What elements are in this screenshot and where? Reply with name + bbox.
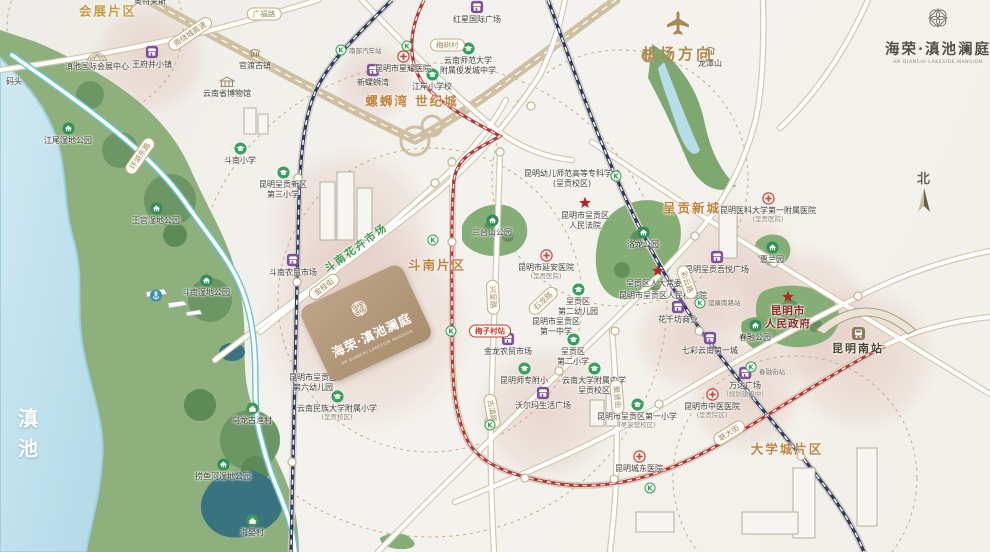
shizhuan-fuxiao-label: 昆明师专附小 (500, 376, 548, 386)
minda-fuxiao-sublabel: (呈贡校区) (321, 414, 352, 421)
renmin-fayuan-label: 昆明市呈贡区 人民法院 (561, 211, 609, 231)
youer-shifan: 昆明幼儿师范高等专科学校 (呈贡校区) (524, 168, 620, 189)
shizhuan-fuxiao: 昆明师专附小 (500, 362, 548, 386)
airport-direction-label: 机场方向 (642, 43, 714, 64)
wharf: 码头 (6, 76, 22, 87)
station-meizicun-metro-icon: K (446, 326, 457, 337)
compass-north-label: 北 (917, 168, 931, 187)
luolong-park-label: 洛龙公园 (627, 240, 659, 250)
jinlong-farmers-market-label: 金龙农贸市场 (484, 347, 532, 357)
road-raocheng: 南绕城高速 (166, 15, 214, 53)
wuyue-plaza: 昆明呈贡吾悦广场 (685, 250, 749, 275)
station-yikangnanlu-label: 谊康南路站 (708, 297, 741, 307)
area-chenggong: 呈贡新城 (663, 198, 721, 217)
no2-kindergarten-label: 呈贡区 第二幼儿园 (558, 297, 598, 317)
huilan-garden: 惠兰园 (760, 241, 784, 265)
guandu-old-town-label: 官渡古镇 (239, 61, 271, 71)
area-huizhan: 会展片区 (79, 1, 137, 20)
haiyan-village: 海晏村 (240, 514, 264, 538)
hongxing-intl-plaza-mall-icon (470, 0, 484, 14)
yunnan-museum: 云南省博物馆 (203, 76, 251, 99)
no1-primary-school-icon (631, 398, 644, 411)
zhongyi-hospital-sublabel: (呈贡院区) (696, 412, 727, 419)
chunrong-park-label: 春融公园 (739, 333, 771, 343)
jiangwei-wetland-park-label: 江尾湿地公园 (44, 136, 92, 146)
huilan-garden-park-icon (766, 241, 779, 254)
wangfujing-town: 王府井小镇 (132, 45, 172, 70)
guandu-old-town: 官渡古镇 (239, 46, 271, 71)
walmart-plaza-mall-icon (536, 386, 550, 400)
zhongyi-hospital-hospital-icon (706, 388, 719, 401)
haiyan-village-village-icon (246, 514, 259, 527)
station-unnamed-2-metro-icon: K (485, 420, 496, 431)
kunming-government-label: 昆明市 人民政府 (765, 305, 811, 331)
outlets-label: 奥特莱斯 (134, 0, 166, 7)
yunnan-museum-museum-icon (219, 76, 235, 88)
airport-direction: 机场方向 (642, 8, 714, 64)
yunnan-museum-label: 云南省博物馆 (203, 89, 251, 99)
renmin-fayuan: 昆明市呈贡区 人民法院 (561, 196, 609, 231)
dounan-primary-label: 斗南小学 (224, 156, 256, 166)
dounan-primary-school-icon (234, 142, 247, 155)
xingyao-hospital-hospital-icon (397, 50, 410, 63)
new-luosiwan-label: 新螺蛳湾 (357, 78, 389, 88)
luolong-park: 洛龙公园 (627, 226, 659, 250)
hongxing-intl-plaza-label: 红星国际广场 (453, 15, 501, 25)
qicai-yunnan-mall-icon (703, 331, 717, 345)
station-chunrongjie-metro-icon: K (746, 362, 757, 373)
label-dianchi: 滇池 (13, 408, 42, 468)
no2-primary-school-icon (567, 333, 580, 346)
xingyao-hospital-label: 昆明市星耀医院 (375, 64, 431, 74)
jiangwei-wetland-park-park-icon (62, 122, 75, 135)
dounan-farmers-market-label: 斗南农贸市场 (269, 268, 317, 278)
wharf-label: 码头 (6, 77, 22, 87)
dianchi-convention-center-label: 滇池国际会展中心 (65, 62, 129, 72)
shizhuan-fuxiao-school-icon (518, 362, 531, 375)
huaqianfang: 花千坊商业 (658, 300, 698, 325)
kunming-south-station-label: 昆明南站 (832, 342, 884, 356)
huaqianfang-label: 花千坊商业 (658, 315, 698, 325)
station-nanbu-bus-label: 南部汽车站 (349, 45, 382, 55)
huaqianfang-mall-icon (671, 300, 685, 314)
brand-logo: 海荣·滇池澜庭 HR DIANCHI LAKESIDE MANSION (885, 2, 990, 65)
renda-changweihui-gov-icon (651, 264, 665, 278)
walmart-plaza: 沃尔玛生活广场 (515, 386, 571, 411)
chengdong-hospital-label: 昆明城东医院 (615, 464, 663, 474)
station-meishucun-metro-icon: K (402, 41, 413, 52)
kunyi-fuyi-hospital-hospital-icon (762, 192, 775, 205)
road-lianda: 联大街 (711, 418, 747, 447)
brand-title: 海荣·滇池澜庭 (885, 38, 990, 59)
compass: 北 (917, 168, 931, 187)
jiangwei-wetland-park: 江尾湿地公园 (44, 122, 92, 146)
zhongyi-hospital: 昆明市中医医院(呈贡院区) (684, 388, 740, 419)
yunda-fuzhong-school-icon (588, 362, 601, 375)
station-unnamed-1-metro-icon: K (428, 235, 439, 246)
yanan-hospital: 昆明市延安医院(呈贡医院) (518, 249, 574, 280)
kunming-south-station: 昆明南站 (832, 326, 884, 356)
hongxing-intl-plaza: 红星国际广场 (453, 0, 501, 25)
station-yikangnanlu-metro-icon: K (695, 298, 706, 309)
label-flower-market: 斗南花卉市场 (321, 220, 390, 276)
brand-subtitle: HR DIANCHI LAKESIDE MANSION (893, 60, 983, 65)
wangguan-wetland-park-park-icon (150, 202, 163, 215)
area-luosiwan: 螺蛳湾 世纪城 (365, 91, 458, 110)
wangfujing-town-label: 王府井小镇 (132, 60, 172, 70)
area-daxuecheng: 大学城片区 (751, 439, 824, 458)
road-guangfulu: 广福路 (247, 8, 282, 21)
santaishan-park-park-icon (486, 214, 499, 227)
kunming-government-gov-icon (781, 290, 795, 304)
haiyan-village-label: 海晏村 (240, 528, 264, 538)
kunming-government: 昆明市 人民政府 (765, 290, 811, 331)
labels-layer: 斗南小学昆明呈贡新区 第三小学云南师范大学 附属俊发城中学江岸小学校呈贡区 第二… (0, 0, 990, 552)
guandu-old-town-pavilion-icon (248, 46, 262, 60)
station-chunrongjie-label: 春融街站 (759, 366, 785, 376)
xinqu-no3-primary: 昆明呈贡新区 第三小学 (259, 166, 307, 200)
wulong-fishing-village-label: 乌龙古渔村 (232, 416, 272, 426)
qicai-yunnan-label: 七彩云南第一城 (682, 346, 738, 356)
kunming-south-station-train-icon (851, 326, 866, 341)
dianchi-convention-center-dome-icon (86, 50, 108, 61)
dounan-wetland-park: 斗南湿地公园 (182, 274, 230, 298)
renmin-fayuan-gov-icon (578, 196, 592, 210)
chunrong-park-park-icon (749, 319, 762, 332)
yanan-hospital-sublabel: (呈贡医院) (530, 273, 561, 280)
wuyue-plaza-label: 昆明呈贡吾悦广场 (685, 265, 749, 275)
xinqu-no3-primary-label: 昆明呈贡新区 第三小学 (259, 180, 307, 200)
wuyue-plaza-mall-icon (710, 250, 724, 264)
luolong-park-park-icon (637, 226, 650, 239)
yanan-hospital-hospital-icon (540, 249, 553, 262)
chengdong-hospital-hospital-icon (633, 450, 646, 463)
minda-fuxiao: 云南民族大学附属小学(呈贡校区) (297, 390, 377, 421)
dianchi-convention-center: 滇池国际会展中心 (65, 50, 129, 72)
station-meizicun-label: 梅子村站 (469, 325, 511, 338)
dock-anchor (150, 289, 163, 302)
wangguan-wetland-park-label: 王官湿地公园 (132, 216, 180, 226)
wulong-fishing-village-village-icon (246, 402, 259, 415)
xingyao-hospital: 昆明市星耀医院 (375, 50, 431, 74)
laoyuhe-wetland-park-park-icon (217, 458, 230, 471)
station-unnamed-4-metro-icon: K (611, 171, 622, 182)
road-huanhu: 环湖东路 (123, 135, 158, 177)
walmart-plaza-label: 沃尔玛生活广场 (515, 401, 571, 411)
qicai-yunnan: 七彩云南第一城 (682, 331, 738, 356)
santaishan-park-label: 三台山公园 (472, 228, 512, 238)
dounan-farmers-market: 斗南农贸市场 (269, 253, 317, 278)
laoyuhe-wetland-park: 捞鱼河湿地公园 (195, 458, 251, 482)
chengdong-hospital: 昆明城东医院 (615, 450, 663, 474)
dounan-wetland-park-label: 斗南湿地公园 (182, 288, 230, 298)
wangguan-wetland-park: 王官湿地公园 (132, 202, 180, 226)
no1-primary-sublabel: (吴家营校区) (618, 422, 656, 429)
brand-emblem-icon (922, 2, 954, 38)
santaishan-park: 三台山公园 (472, 214, 512, 238)
wulong-fishing-village: 乌龙古渔村 (232, 402, 272, 426)
wangfujing-town-mall-icon (145, 45, 159, 59)
no1-primary: 昆明市呈贡区第一小学(吴家营校区) (597, 398, 677, 429)
kunyi-fuyi-hospital: 昆明医科大学第一附属医院(呈贡医院) (720, 192, 816, 223)
dounan-wetland-park-park-icon (200, 274, 213, 287)
no2-kindergarten: 呈贡区 第二幼儿园 (558, 283, 598, 317)
kunyi-fuyi-hospital-sublabel: (呈贡医院) (752, 216, 783, 223)
dounan-farmers-market-mall-icon (286, 253, 300, 267)
station-nanbu-bus-metro-icon: K (336, 45, 347, 56)
youer-shifan-label: 昆明幼儿师范高等专科学校 (呈贡校区) (524, 169, 620, 189)
no2-kindergarten-school-icon (572, 283, 585, 296)
station-unnamed-3-metro-icon: K (645, 483, 656, 494)
dounan-primary: 斗南小学 (224, 142, 256, 166)
station-meishucun-label: 梅树村 (430, 39, 465, 52)
dock-anchor-dock-icon (150, 289, 163, 302)
area-dounan: 斗南片区 (408, 255, 466, 274)
location-map: 斗南小学昆明呈贡新区 第三小学云南师范大学 附属俊发城中学江岸小学校呈贡区 第二… (0, 0, 990, 552)
xinqu-no3-primary-school-icon (277, 166, 290, 179)
laoyuhe-wetland-park-label: 捞鱼河湿地公园 (195, 472, 251, 482)
road-shilong: 石龙路 (526, 284, 560, 317)
huilan-garden-label: 惠兰园 (760, 255, 784, 265)
road-xingcheng: 兴呈路 (486, 280, 500, 315)
outlets: 奥特莱斯 (134, 0, 166, 7)
airplane-icon (657, 8, 699, 42)
